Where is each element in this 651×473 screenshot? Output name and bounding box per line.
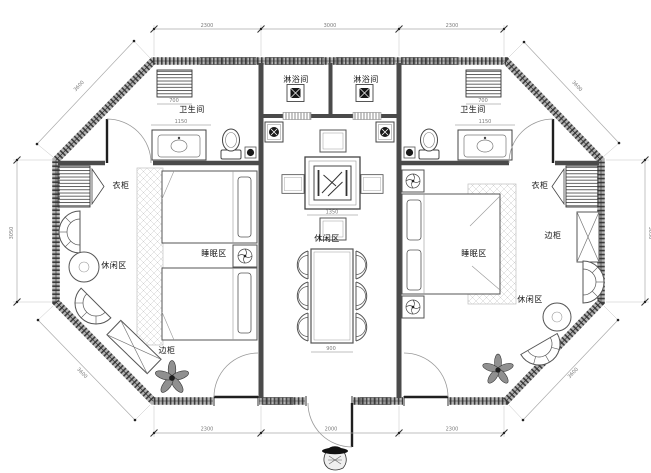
entrance-door-arc [308, 403, 352, 447]
label-sleeping-right: 睡眠区 [461, 249, 487, 258]
label-wardrobe-right: 衣柜 [532, 180, 549, 190]
right-double-bed [402, 194, 500, 294]
dim-bottom-middle: 2000 [325, 427, 338, 433]
dimension-right: 3050 [606, 157, 651, 306]
right-nightstand-top [402, 170, 424, 192]
right-wardrobe-door-symbol [552, 169, 564, 204]
left-bathroom [152, 70, 256, 160]
left-fan-chair-1 [59, 211, 80, 253]
dim-left-bath: 1150 [175, 119, 188, 125]
dining-chair [297, 251, 308, 279]
dimension-bottom: 2300 2000 2300 [151, 406, 508, 437]
dim-top-left: 2300 [201, 23, 214, 29]
dining-area [297, 249, 366, 343]
dim-right: 3050 [647, 227, 651, 240]
left-wardrobe-door-symbol [92, 169, 104, 204]
label-leisure-left: 休闲区 [101, 260, 127, 270]
right-vanity-sink [458, 130, 512, 160]
floor-plan-drawing: 2300 3000 2300 2300 2000 2300 3050 3050 [0, 0, 651, 473]
left-round-table [69, 252, 99, 282]
shower-threshold-right [353, 113, 381, 120]
dim-bottom-left: 2300 [201, 427, 214, 433]
dining-chair [297, 282, 308, 310]
entrance-ornament [322, 446, 348, 470]
left-vanity-sink [152, 130, 206, 160]
label-side-cabinet-right: 边柜 [545, 230, 562, 240]
dim-diag-br: 3600 [567, 367, 580, 380]
tea-area [282, 130, 383, 240]
dining-chair [297, 313, 308, 341]
dimension-diagonal-top-right: 3600 [508, 41, 620, 157]
shower-threshold-left [283, 113, 311, 120]
right-toilet [419, 129, 439, 159]
tea-stool-top [320, 130, 346, 152]
label-side-cabinet-left: 边柜 [159, 345, 176, 355]
dining-chair [356, 282, 367, 310]
left-shower-drain [287, 85, 304, 102]
tea-stool-right [361, 175, 383, 194]
right-mop-drain [404, 147, 415, 158]
tea-stool-left [282, 175, 304, 194]
dim-diag-tr: 3600 [570, 80, 583, 93]
left-bedroom-rug [137, 168, 163, 345]
dim-top-middle: 3000 [324, 23, 337, 29]
left-bath-door-arc [107, 119, 151, 163]
label-leisure-right: 休闲区 [517, 294, 543, 304]
left-wardrobe [58, 166, 90, 207]
right-round-table [543, 303, 571, 331]
label-leisure-center: 休闲区 [314, 233, 340, 243]
right-bathroom [404, 70, 512, 160]
left-mop-drain [245, 147, 256, 158]
dim-top-right: 2300 [446, 23, 459, 29]
right-washbasin [376, 122, 394, 142]
left-washbasin [265, 122, 283, 142]
right-bath-door-arc [509, 119, 553, 163]
dimension-left: 3050 [9, 157, 52, 306]
label-shower-right: 淋浴间 [353, 74, 379, 84]
dimension-diagonal-top-left: 3600 [36, 40, 150, 157]
left-toilet [221, 129, 241, 159]
dim-dining: 900 [326, 346, 336, 352]
label-shower-left: 淋浴间 [283, 74, 309, 84]
right-wardrobe [566, 166, 598, 207]
label-sleeping-left: 睡眠区 [201, 249, 227, 258]
dim-tea-table: 1350 [326, 210, 339, 216]
dim-bottom-right: 2300 [446, 427, 459, 433]
dim-right-closet: 700 [478, 98, 488, 104]
label-bathroom-left: 卫生间 [179, 104, 205, 114]
right-plant [482, 354, 515, 385]
left-nightstand [233, 245, 257, 267]
left-suite-door-arc [214, 353, 258, 397]
label-bathroom-right: 卫生间 [460, 104, 486, 114]
floor-plan-canvas: 2300 3000 2300 2300 2000 2300 3050 3050 [0, 0, 651, 473]
dim-right-bath: 1150 [479, 119, 492, 125]
left-bed-1 [162, 171, 257, 243]
dim-left-closet: 700 [169, 98, 179, 104]
left-fan-chair-2 [66, 288, 111, 333]
label-wardrobe-left: 衣柜 [113, 180, 130, 190]
right-suite-door-arc [404, 353, 448, 397]
right-nightstand-bottom [402, 296, 424, 318]
left-bath-closet [157, 70, 192, 97]
dining-chair [356, 251, 367, 279]
right-side-cabinet [577, 212, 599, 262]
dim-diag-tl: 3600 [73, 80, 86, 93]
left-plant [154, 361, 189, 395]
dimension-top: 2300 3000 2300 [151, 23, 508, 56]
left-bed-2 [162, 268, 257, 340]
dim-diag-bl: 3600 [75, 367, 88, 380]
right-shower-drain [356, 85, 373, 102]
dining-chair [356, 313, 367, 341]
dim-left: 3050 [9, 227, 15, 240]
right-bath-closet [466, 70, 501, 97]
dining-table [311, 249, 353, 343]
